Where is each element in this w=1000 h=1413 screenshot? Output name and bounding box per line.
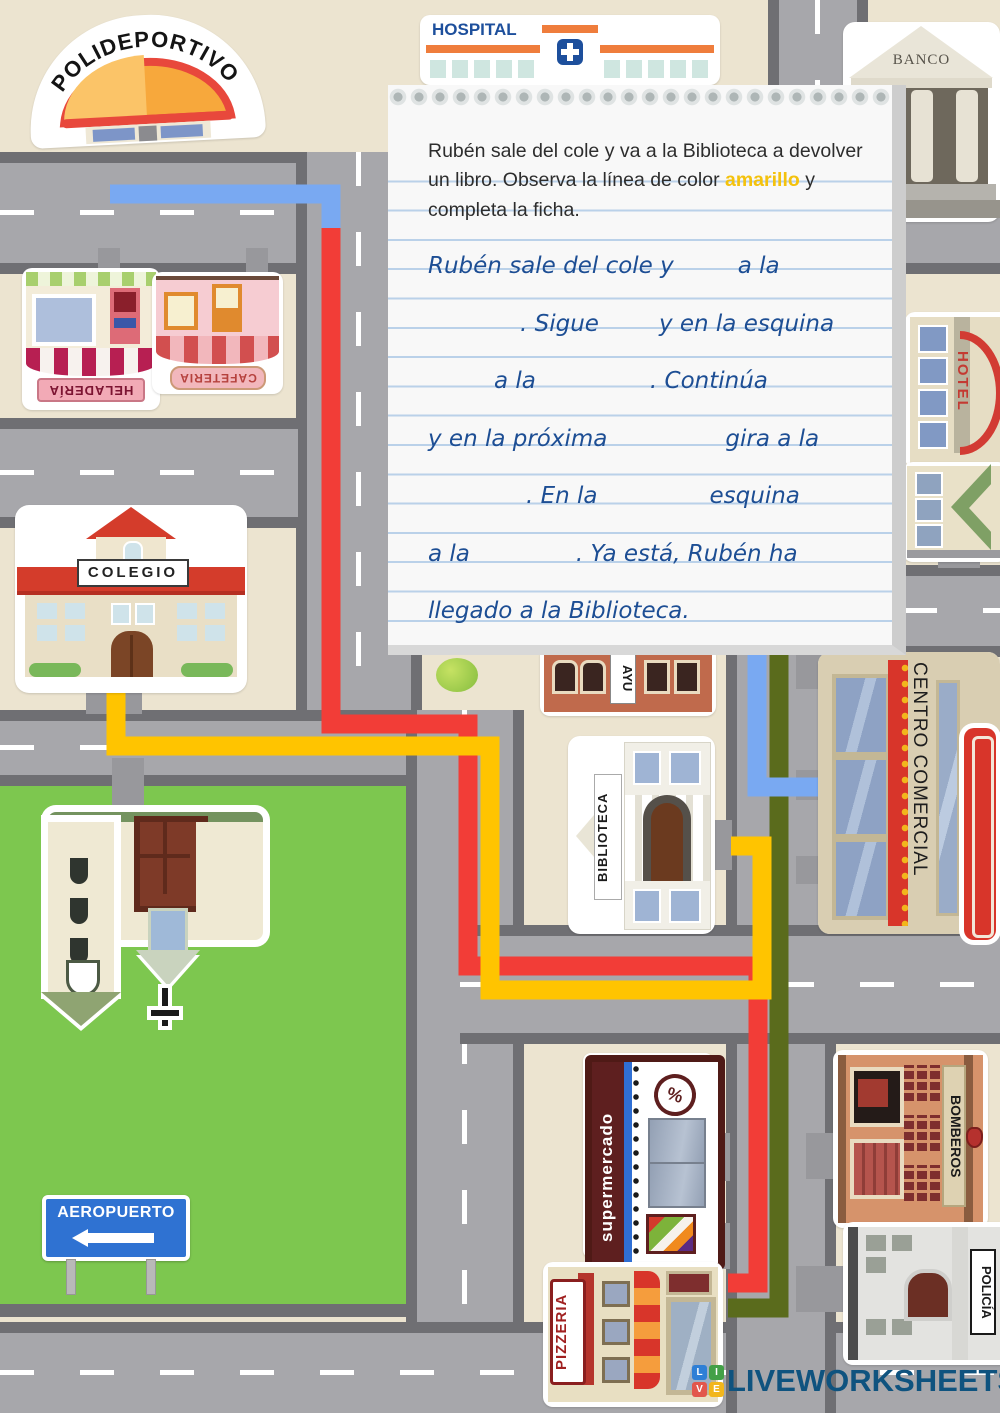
notepad: Rubén sale del cole y va a la Biblioteca… [388, 85, 906, 655]
building-supermercado: supermercado % [583, 1053, 713, 1258]
church-blue-window [148, 908, 188, 954]
heladeria-awning [26, 348, 156, 376]
ayuntamiento-label: AYU [610, 652, 636, 704]
exercise-text: . En la [526, 483, 598, 509]
biblioteca-facade [624, 742, 711, 930]
heladeria-window [32, 294, 96, 346]
hospital-cross-icon [557, 39, 583, 65]
exercise-line-3: a la. Continúa [428, 368, 870, 394]
building-biblioteca: BIBLIOTECA [568, 736, 715, 934]
polideportivo-graphic: POLIDEPORTIVO [25, 9, 266, 149]
mall-glass-3 [832, 838, 890, 920]
tree-icon [436, 658, 478, 692]
cafeteria-window [164, 292, 198, 330]
exercise-text: . Continúa [650, 368, 768, 394]
mall-glass-1 [832, 674, 890, 756]
instructions-highlight: amarillo [725, 169, 800, 191]
liveworksheets-wordmark: LIVEWORKSHEETS [727, 1363, 1000, 1399]
colegio-label: COLEGIO [77, 559, 189, 587]
exercise-text: gira a la [725, 426, 819, 452]
exercise-text: a la [428, 541, 470, 567]
heladeria-facade [26, 286, 156, 348]
exercise-text: a la [738, 253, 780, 279]
aeropuerto-label: AEROPUERTO [46, 1204, 186, 1222]
building-cafeteria: CAFETERIA [152, 272, 283, 394]
building-policia: POLICÍA [843, 1222, 1000, 1365]
supermercado-window-1 [648, 1118, 706, 1164]
colegio-windows-right [177, 603, 225, 641]
bomberos-window-2 [904, 1115, 940, 1151]
exercise-line-4: y en la próximagira a la [428, 426, 870, 452]
biblioteca-label: BIBLIOTECA [594, 774, 622, 900]
bomberos-shield-icon [966, 1127, 983, 1148]
exercise-text: y en la esquina [659, 311, 834, 337]
supermercado-window-2 [648, 1162, 706, 1208]
cafeteria-label: CAFETERIA [170, 366, 266, 390]
pizzeria-top-window [666, 1271, 712, 1295]
building-polideportivo: POLIDEPORTIVO [25, 9, 266, 149]
colegio-windows-left [37, 603, 85, 641]
notepad-spiral-icon [388, 85, 892, 111]
building-church [48, 812, 263, 1034]
exercise-line-5: . En laesquina [428, 483, 870, 509]
map-canvas: POLIDEPORTIVO HOSPITAL BANCO [0, 0, 1000, 1413]
supermercado-label: supermercado [597, 1070, 617, 1242]
heladeria-kiosk [110, 288, 140, 344]
exercise-line-2: . Siguey en la esquina [428, 311, 870, 337]
colegio-tower-roof [86, 507, 176, 539]
exercise-line-1: Rubén sale del cole ya la [428, 253, 870, 279]
bomberos-garage-2 [850, 1139, 904, 1199]
building-green-house [903, 462, 1000, 562]
exercise-line-7: llegado a la Biblioteca. [428, 598, 870, 624]
hospital-wing-left [426, 45, 540, 81]
aeropuerto-sign: AEROPUERTO [42, 1195, 192, 1295]
hotel-label: HOTEL [954, 351, 971, 412]
exercise-text: llegado a la Biblioteca. [428, 598, 690, 624]
liveworksheets-logo[interactable]: L I V E LIVEWORKSHEETS [692, 1363, 1000, 1399]
mall-glass-4 [936, 680, 960, 916]
bomberos-window-1 [904, 1065, 940, 1101]
exercise-text: . Sigue [520, 311, 599, 337]
pizzeria-label: PIZZERIA [550, 1279, 586, 1385]
notepad-ruled-lines [388, 153, 892, 645]
exercise-text: y en la próxima [428, 426, 607, 452]
colegio-door [111, 631, 153, 677]
aeropuerto-arrow-icon [72, 1229, 88, 1247]
biblioteca-door [651, 803, 683, 881]
colegio-body [25, 595, 237, 677]
building-hotel: HOTEL [905, 312, 1000, 468]
exercise-text: a la [494, 368, 536, 394]
bomberos-garage-1 [850, 1067, 904, 1127]
building-ayuntamiento: AYU [540, 646, 716, 716]
cafeteria-facade [156, 276, 279, 336]
cafeteria-door [212, 284, 242, 332]
liveworksheets-logo-icon: L I V E [692, 1365, 724, 1397]
pizzeria-awning [634, 1271, 660, 1389]
hospital-wing-right [600, 45, 714, 81]
church-cross-icon [162, 988, 168, 1026]
exercise-text: esquina [710, 483, 800, 509]
cafeteria-awning [156, 336, 279, 364]
mall-awning [888, 660, 908, 926]
exercise-line-6: a la. Ya está, Rubén ha [428, 541, 870, 567]
exercise-text: Rubén sale del cole y [428, 253, 674, 279]
exercise-text: . Ya está, Rubén ha [576, 541, 798, 567]
supermercado-discount-icon: % [649, 1069, 702, 1122]
heladeria-label: HELADERÍA [37, 378, 145, 402]
banco-label: BANCO [849, 52, 994, 69]
church-tower [48, 822, 114, 992]
building-bomberos: BOMBEROS [833, 1050, 988, 1228]
building-colegio: COLEGIO [15, 505, 247, 693]
hospital-label: HOSPITAL [432, 20, 517, 40]
supermercado-produce-image [646, 1214, 696, 1254]
supermercado-sign-band: supermercado [592, 1062, 624, 1263]
church-door [66, 960, 100, 996]
policia-label: POLICÍA [970, 1249, 996, 1335]
building-heladeria: HELADERÍA [22, 268, 160, 410]
task-instructions: Rubén sale del cole y va a la Biblioteca… [428, 137, 880, 225]
bomberos-window-3 [904, 1165, 940, 1201]
mall-glass-2 [832, 756, 890, 838]
building-centro-comercial: CENTRO COMERCIAL [818, 652, 1000, 934]
centro-comercial-label: CENTRO COMERCIAL [908, 662, 930, 928]
policia-door [904, 1269, 952, 1321]
building-hospital: HOSPITAL [420, 15, 720, 85]
bomberos-label: BOMBEROS [942, 1065, 966, 1207]
mall-banner [964, 728, 996, 940]
hospital-tower [542, 25, 598, 81]
